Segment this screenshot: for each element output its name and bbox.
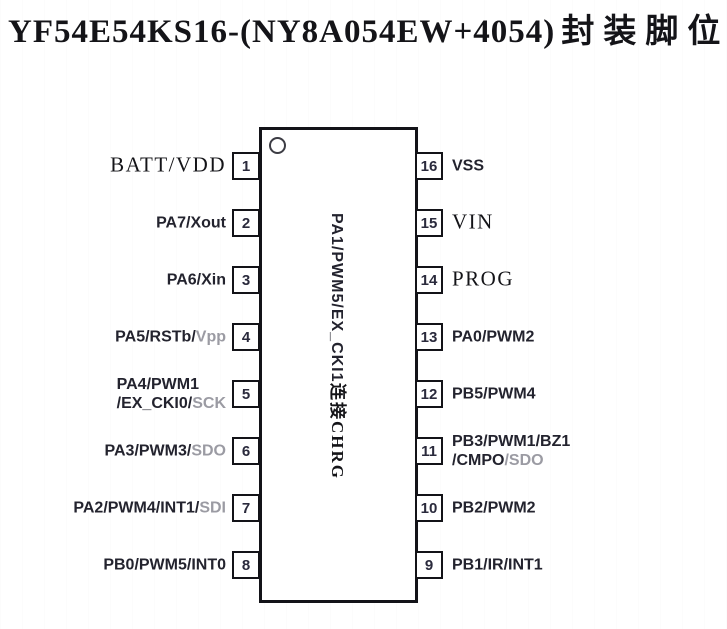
pin-label-text: BATT/VDD [110,156,226,177]
pin-signal-segment: VSS [452,158,484,175]
pin-number: 10 [421,500,438,517]
pin-label-text: PB2/PWM2 [452,499,536,518]
pin-signal-segment: PB2/PWM2 [452,500,536,517]
pin-label-text: PA3/PWM3/SDO [105,442,227,461]
pin-label-15: VIN [452,213,724,234]
pin-label-6: PA3/PWM3/SDO [0,442,226,461]
pin-signal-segment: PA7/Xout [156,215,226,232]
pin-label-text: PB5/PWM4 [452,385,536,404]
pin-number-box-16: 16 [415,152,443,180]
pin-label-10: PB2/PWM2 [452,499,724,518]
pin-label-line: BATT/VDD [110,156,226,177]
pin-label-13: PA0/PWM2 [452,328,724,347]
pin-label-9: PB1/IR/INT1 [452,556,724,575]
pin-label-text: PB3/PWM1/BZ1/CMPO/SDO [452,432,570,470]
pin-label-5: PA4/PWM1/EX_CKI0/SCK [0,375,226,413]
pin-label-line: /CMPO/SDO [452,451,570,470]
pin-label-line: VIN [452,213,494,234]
pin-signal-segment: PB0/PWM5/INT0 [103,557,226,574]
pin-signal-segment: PA5/RSTb/ [115,329,196,346]
pin-label-text: PA6/Xin [167,271,226,290]
pin-signal-segment: PA0/PWM2 [452,329,534,346]
pin-label-3: PA6/Xin [0,271,226,290]
pin-label-text: PB0/PWM5/INT0 [103,556,226,575]
pin-label-4: PA5/RSTb/Vpp [0,328,226,347]
pin-label-line: PA0/PWM2 [452,328,534,347]
pin-signal-segment: PROG [452,267,514,291]
pin-label-14: PROG [452,270,724,291]
pin-signal-segment: PA4/PWM1 [117,376,199,393]
pin-label-line: PA7/Xout [156,214,226,233]
pin-label-8: PB0/PWM5/INT0 [0,556,226,575]
pin-label-text: PB1/IR/INT1 [452,556,543,575]
pin-signal-segment: PA3/PWM3/ [105,443,192,460]
pin-label-2: PA7/Xout [0,214,226,233]
pin-label-text: PROG [452,270,514,291]
pin-signal-segment: /EX_CKI0/ [117,395,193,412]
pin-label-line: PB3/PWM1/BZ1 [452,432,570,451]
pin-number: 3 [242,272,250,289]
pin-label-text: VSS [452,157,484,176]
pin-number: 6 [242,443,250,460]
pin-label-line: PA6/Xin [167,271,226,290]
pin-signal-segment: Vpp [196,329,226,346]
pin-number: 12 [421,386,438,403]
pin-number-box-8: 8 [232,551,260,579]
pin-label-line: PB2/PWM2 [452,499,536,518]
pin-signal-segment: PA2/PWM4/INT1/ [73,500,199,517]
pin-signal-segment: SCK [192,395,226,412]
pin-number-box-15: 15 [415,209,443,237]
pin-label-line: PA4/PWM1 [117,375,226,394]
pin-number: 8 [242,557,250,574]
pin-label-line: PB0/PWM5/INT0 [103,556,226,575]
pin-label-line: PB5/PWM4 [452,385,536,404]
pin-label-text: PA2/PWM4/INT1/SDI [73,499,226,518]
pin-number-box-9: 9 [415,551,443,579]
pin-signal-segment: SDI [199,500,226,517]
pin-number: 5 [242,386,250,403]
pin-label-text: PA4/PWM1/EX_CKI0/SCK [117,375,226,413]
pin-signal-segment: PB3/PWM1/BZ1 [452,433,570,450]
pin-label-line: VSS [452,157,484,176]
pin-label-12: PB5/PWM4 [452,385,724,404]
pin-number: 9 [425,557,433,574]
pin-label-text: VIN [452,213,494,234]
pin-label-1: BATT/VDD [0,156,226,177]
chip-center-label: PA1/PWM5/EX_CKI1连接CHRG [325,213,348,513]
pin-label-11: PB3/PWM1/BZ1/CMPO/SDO [452,432,724,470]
pin-signal-segment: BATT/VDD [110,153,226,177]
pin-number-box-14: 14 [415,266,443,294]
pin-label-text: PA7/Xout [156,214,226,233]
pin-number-box-12: 12 [415,380,443,408]
pin-label-line: PA5/RSTb/Vpp [115,328,226,347]
pin-signal-segment: /CMPO [452,452,504,469]
pin-label-line: PA3/PWM3/SDO [105,442,227,461]
pin-label-line: PA2/PWM4/INT1/SDI [73,499,226,518]
pin-number: 1 [242,158,250,175]
center-label-note: 连接CHRG [328,383,347,480]
pin-number: 13 [421,329,438,346]
pin-number: 11 [421,443,437,460]
pin-signal-segment: PA6/Xin [167,272,226,289]
pin-number-box-13: 13 [415,323,443,351]
pin-number-box-3: 3 [232,266,260,294]
pin-number-box-1: 1 [232,152,260,180]
pin-number-box-4: 4 [232,323,260,351]
pinout-diagram: PA1/PWM5/EX_CKI1连接CHRG 1BATT/VDD2PA7/Xou… [0,0,727,629]
pin1-indicator-circle-icon [269,137,286,154]
pin-label-7: PA2/PWM4/INT1/SDI [0,499,226,518]
pin-label-line: PROG [452,270,514,291]
pin-number-box-6: 6 [232,437,260,465]
pin-label-line: PB1/IR/INT1 [452,556,543,575]
pin-number-box-2: 2 [232,209,260,237]
pin-number: 4 [242,329,250,346]
pin-number: 15 [421,215,438,232]
pin-label-text: PA5/RSTb/Vpp [115,328,226,347]
pin-label-line: /EX_CKI0/SCK [117,394,226,413]
pin-number: 16 [421,158,438,175]
center-label-signal: PA1/PWM5/EX_CKI1 [328,213,345,383]
pin-signal-segment: /SDO [504,452,543,469]
pin-number-box-10: 10 [415,494,443,522]
pin-label-text: PA0/PWM2 [452,328,534,347]
pin-number-box-11: 11 [415,437,443,465]
pin-label-16: VSS [452,157,724,176]
pin-number-box-5: 5 [232,380,260,408]
pin-number-box-7: 7 [232,494,260,522]
pin-number: 7 [242,500,250,517]
pin-signal-segment: PB5/PWM4 [452,386,536,403]
pin-signal-segment: SDO [191,443,226,460]
pin-signal-segment: VIN [452,210,494,234]
pin-number: 14 [421,272,438,289]
pin-number: 2 [242,215,250,232]
pin-signal-segment: PB1/IR/INT1 [452,557,543,574]
